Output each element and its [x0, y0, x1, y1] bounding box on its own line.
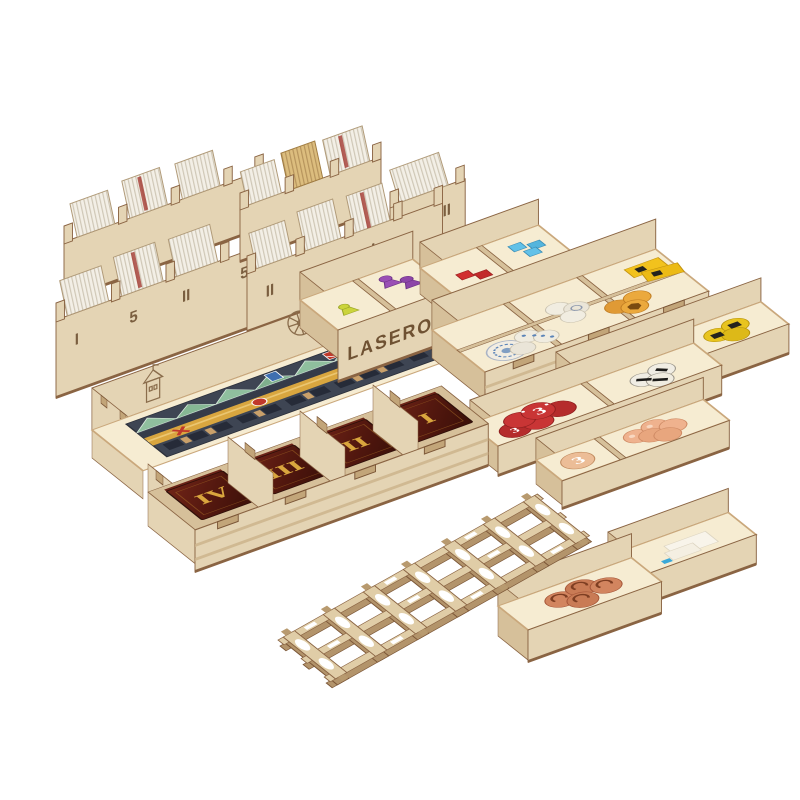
organizer-scene: I 5 II 5: [0, 0, 800, 800]
rack-label: II: [182, 286, 190, 306]
product-photo: I 5 II 5: [0, 0, 800, 800]
rack-label: II: [266, 281, 274, 301]
rack-label: 5: [129, 307, 137, 327]
rack-label: I: [75, 331, 79, 350]
rack-label: II: [443, 201, 451, 221]
